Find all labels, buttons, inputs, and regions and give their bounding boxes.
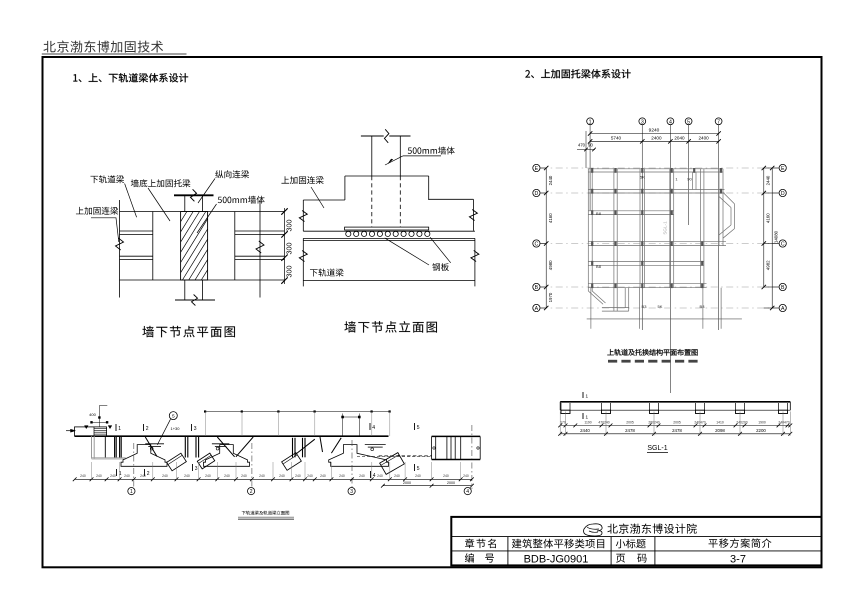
svg-text:1: 1 <box>118 426 121 432</box>
svg-text:240: 240 <box>377 474 383 478</box>
svg-text:240: 240 <box>415 474 421 478</box>
svg-text:2: 2 <box>250 489 253 495</box>
svg-text:A: A <box>781 306 785 312</box>
svg-text:1: 1 <box>586 394 589 399</box>
svg-text:240: 240 <box>307 474 313 478</box>
svg-text:2200: 2200 <box>756 428 766 433</box>
svg-text:470240: 470240 <box>598 420 609 424</box>
svg-text:B: B <box>535 285 539 291</box>
svg-text:D: D <box>781 191 785 197</box>
svg-text:B3: B3 <box>642 304 648 309</box>
svg-text:SGL-1: SGL-1 <box>663 221 668 235</box>
svg-text:240: 240 <box>295 474 301 478</box>
svg-text:240: 240 <box>184 474 190 478</box>
svg-text:SGL-1: SGL-1 <box>647 445 667 452</box>
svg-text:3: 3 <box>350 489 353 495</box>
svg-text:5: 5 <box>417 425 420 431</box>
svg-text:B8: B8 <box>596 264 602 269</box>
svg-text:1970: 1970 <box>548 292 553 302</box>
svg-text:4: 4 <box>669 119 672 125</box>
svg-text:1900: 1900 <box>758 420 766 424</box>
svg-text:5K: 5K <box>658 304 663 309</box>
svg-text:2440: 2440 <box>580 428 590 433</box>
svg-text:2400: 2400 <box>651 135 662 140</box>
svg-text:2440: 2440 <box>548 175 553 185</box>
svg-text:240: 240 <box>463 474 469 478</box>
svg-text:B8: B8 <box>596 211 602 216</box>
svg-text:90: 90 <box>687 177 692 182</box>
svg-text:D: D <box>535 191 539 197</box>
svg-text:2005: 2005 <box>673 420 681 424</box>
svg-text:4: 4 <box>372 425 375 431</box>
svg-text:170: 170 <box>560 420 566 424</box>
svg-text:240: 240 <box>339 474 345 478</box>
svg-text:240: 240 <box>124 474 130 478</box>
svg-text:5740: 5740 <box>611 135 622 140</box>
svg-text:2440: 2440 <box>765 175 770 185</box>
svg-text:BDB-JG0901: BDB-JG0901 <box>524 553 589 565</box>
svg-text:240: 240 <box>96 474 102 478</box>
svg-text:4980: 4980 <box>548 260 553 270</box>
svg-text:240200: 240200 <box>736 420 747 424</box>
svg-text:1: 1 <box>130 489 133 495</box>
svg-text:1+30: 1+30 <box>171 426 181 431</box>
svg-text:240: 240 <box>259 474 265 478</box>
svg-text:5: 5 <box>417 466 420 472</box>
svg-text:240: 240 <box>394 474 400 478</box>
svg-text:3: 3 <box>641 119 644 125</box>
svg-text:2000: 2000 <box>447 481 455 485</box>
svg-text:3: 3 <box>194 426 197 432</box>
svg-text:A: A <box>535 306 539 312</box>
svg-text:240: 240 <box>162 474 168 478</box>
svg-text:5K: 5K <box>640 174 645 179</box>
svg-text:2000: 2000 <box>403 481 411 485</box>
svg-text:2: 2 <box>146 426 149 432</box>
svg-text:4982: 4982 <box>765 260 770 270</box>
svg-text:5: 5 <box>172 414 175 420</box>
svg-text:B8: B8 <box>700 304 706 309</box>
svg-text:1410: 1410 <box>716 420 724 424</box>
svg-text:90: 90 <box>588 143 593 148</box>
svg-text:7: 7 <box>717 119 720 125</box>
svg-text:240: 240 <box>80 474 86 478</box>
svg-text:B: B <box>781 285 785 291</box>
svg-text:240: 240 <box>359 474 365 478</box>
svg-text:9240: 9240 <box>649 128 660 134</box>
svg-text:240: 240 <box>279 474 285 478</box>
svg-text:470: 470 <box>578 143 586 148</box>
svg-text:240: 240 <box>205 474 211 478</box>
svg-text:4160: 4160 <box>548 213 553 223</box>
svg-text:2478: 2478 <box>672 428 682 433</box>
svg-text:300: 300 <box>285 266 294 278</box>
svg-text:E: E <box>535 166 539 172</box>
svg-text:240470: 240470 <box>778 420 789 424</box>
svg-text:1: 1 <box>589 119 592 125</box>
svg-text:300: 300 <box>285 243 294 255</box>
svg-text:4: 4 <box>466 489 469 495</box>
svg-text:2098: 2098 <box>715 428 725 433</box>
svg-text:5: 5 <box>687 119 690 125</box>
svg-text:C: C <box>535 242 539 248</box>
svg-text:400: 400 <box>89 412 96 417</box>
svg-text:3: 3 <box>195 466 198 472</box>
svg-text:240: 240 <box>140 474 146 478</box>
svg-text:2005: 2005 <box>626 420 634 424</box>
svg-text:2: 2 <box>147 471 150 477</box>
svg-text:1190: 1190 <box>584 420 591 424</box>
svg-text:240: 240 <box>443 474 449 478</box>
svg-text:1: 1 <box>586 415 589 420</box>
svg-text:14080: 14080 <box>773 230 778 243</box>
svg-text:240: 240 <box>320 474 326 478</box>
svg-text:240: 240 <box>241 474 247 478</box>
svg-text:E: E <box>781 166 785 172</box>
svg-text:240: 240 <box>110 474 116 478</box>
svg-text:4160: 4160 <box>765 213 770 223</box>
svg-text:240: 240 <box>224 474 230 478</box>
svg-text:3-7: 3-7 <box>730 553 746 565</box>
svg-text:1: 1 <box>119 471 122 477</box>
svg-text:C: C <box>781 242 785 248</box>
svg-text:2040: 2040 <box>674 135 685 140</box>
svg-text:2478: 2478 <box>625 428 635 433</box>
svg-text:300: 300 <box>285 220 294 232</box>
svg-text:2400: 2400 <box>698 135 709 140</box>
